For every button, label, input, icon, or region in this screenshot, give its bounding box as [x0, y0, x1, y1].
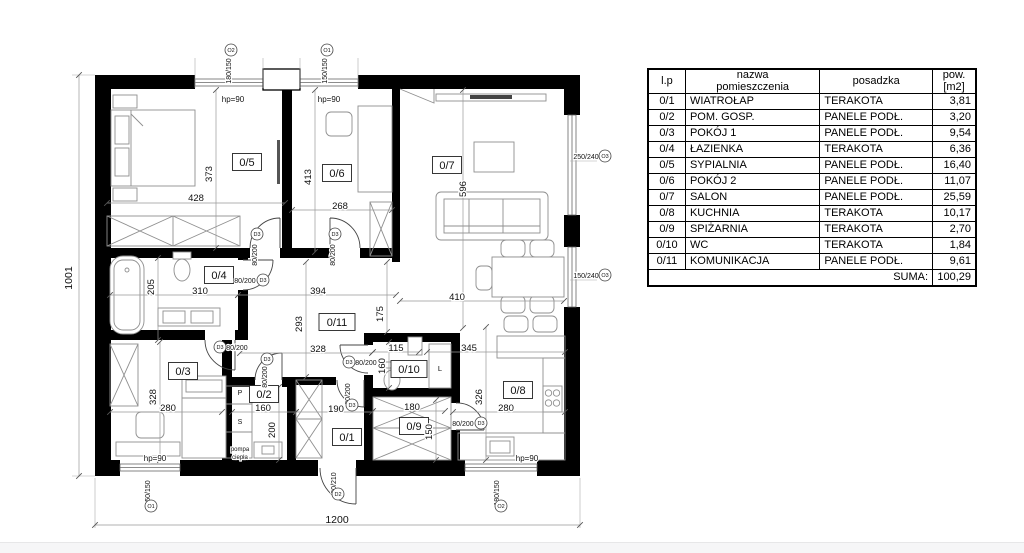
cell-lp: 0/2	[648, 110, 685, 126]
dimension-text: 310	[192, 286, 208, 297]
dimension-text: 293	[294, 316, 305, 332]
mark-label: O2	[497, 504, 504, 510]
annotation: hp=90	[318, 95, 341, 104]
table-row: 0/6POKÓJ 2PANELE PODŁ.11,07	[648, 174, 976, 190]
annotation: L	[438, 364, 442, 373]
chair	[530, 240, 554, 257]
cell-lp: 0/11	[648, 254, 685, 270]
nightstand	[113, 188, 137, 201]
chair	[530, 296, 554, 313]
suma-label: SUMA:	[648, 270, 933, 287]
dimension-text: 373	[204, 166, 215, 182]
cell-area: 9,61	[933, 254, 976, 270]
cell-area: 1,84	[933, 238, 976, 254]
cell-area: 11,07	[933, 174, 976, 190]
wardrobe	[107, 216, 240, 246]
dimension-text: 280	[160, 403, 176, 414]
cell-floor: PANELE PODŁ.	[820, 126, 933, 142]
dimension-text: 410	[449, 292, 465, 303]
floor-plan-page: 0/50/60/70/40/110/30/20/10/100/90/8 3734…	[0, 0, 1024, 553]
mark-label: D3	[263, 357, 270, 363]
cell-name: SALON	[685, 190, 819, 206]
opening-size: 80/200	[452, 421, 474, 428]
dimension-text: 180	[404, 402, 420, 413]
table-row: 0/8KUCHNIATERAKOTA10,17	[648, 206, 976, 222]
room-label: 0/3	[175, 366, 190, 378]
opening-size: 80/200	[262, 366, 269, 388]
room-label: 0/2	[256, 389, 271, 401]
tv	[470, 95, 512, 99]
dimension-text: 150	[424, 424, 435, 440]
kitchen-peninsula	[497, 336, 565, 358]
toilet	[173, 252, 191, 259]
chair	[476, 266, 492, 290]
header-lp: l.p	[648, 69, 685, 94]
dimension-text: 1200	[325, 514, 349, 526]
opening-size: 150/240	[573, 273, 598, 280]
dimension-text: 115	[388, 343, 403, 354]
cell-name: KOMUNIKACJA	[685, 254, 819, 270]
hob	[543, 386, 562, 412]
cell-floor: TERAKOTA	[820, 222, 933, 238]
opening-size: 80/200	[355, 360, 377, 367]
dimension-text: 160	[255, 403, 271, 414]
dimension-text: 328	[148, 389, 159, 405]
dimension-text: 190	[328, 404, 344, 415]
opening-size: 80/200	[252, 244, 259, 266]
cell-area: 2,70	[933, 222, 976, 238]
annotation: hp=90	[144, 454, 167, 463]
cell-floor: PANELE PODŁ.	[820, 190, 933, 206]
annotation: pompa	[231, 447, 250, 453]
dimension-text: 413	[303, 169, 314, 185]
cell-lp: 0/8	[648, 206, 685, 222]
opening-size: 180/150	[226, 58, 233, 83]
dimension-text: 1001	[63, 266, 75, 290]
table-row: 0/7SALONPANELE PODŁ.25,59	[648, 190, 976, 206]
dimension-text: 205	[146, 279, 157, 295]
dimension-text: 268	[332, 201, 348, 212]
cell-lp: 0/10	[648, 238, 685, 254]
table-row: 0/4ŁAZIENKATERAKOTA6,36	[648, 142, 976, 158]
cell-name: POM. GOSP.	[685, 110, 819, 126]
mark-label: D3	[348, 403, 355, 409]
cell-floor: TERAKOTA	[820, 94, 933, 110]
chimney	[263, 69, 300, 90]
dimension-text: 345	[461, 343, 477, 354]
opening-size: 80/200	[330, 244, 337, 266]
annotation: hp=90	[516, 454, 539, 463]
cell-floor: PANELE PODŁ.	[820, 158, 933, 174]
opening-size: 80/200	[226, 345, 248, 352]
nightstand	[113, 95, 137, 108]
table-suma-row: SUMA: 100,29	[648, 270, 976, 287]
mark-label: D3	[253, 232, 260, 238]
desk	[358, 106, 392, 192]
table-row: 0/9SPIŻARNIATERAKOTA2,70	[648, 222, 976, 238]
cell-area: 6,36	[933, 142, 976, 158]
washer	[254, 442, 282, 458]
cell-name: WIATROŁAP	[685, 94, 819, 110]
bar-stool	[504, 316, 528, 332]
mark-label: O3	[601, 154, 608, 160]
cell-name: SYPIALNIA	[685, 158, 819, 174]
room-label: 0/1	[339, 432, 354, 444]
mark-label: D3	[477, 421, 484, 427]
cell-area: 16,40	[933, 158, 976, 174]
cell-lp: 0/6	[648, 174, 685, 190]
table-row: 0/5SYPIALNIAPANELE PODŁ.16,40	[648, 158, 976, 174]
header-floor: posadzka	[820, 69, 933, 94]
room-label: 0/9	[406, 421, 421, 433]
cell-name: POKÓJ 1	[685, 126, 819, 142]
room-label: 0/7	[439, 160, 454, 172]
cell-floor: TERAKOTA	[820, 238, 933, 254]
cell-floor: PANELE PODŁ.	[820, 254, 933, 270]
cell-lp: 0/4	[648, 142, 685, 158]
cell-name: SPIŻARNIA	[685, 222, 819, 238]
mark-label: O1	[147, 504, 154, 510]
cell-floor: TERAKOTA	[820, 206, 933, 222]
mark-label: D3	[331, 232, 338, 238]
cell-name: WC	[685, 238, 819, 254]
cell-area: 10,17	[933, 206, 976, 222]
room-label: 0/5	[239, 157, 254, 169]
room-label: 0/8	[510, 385, 525, 397]
tv	[277, 140, 280, 184]
chair	[501, 296, 525, 313]
dimension-text: 280	[498, 403, 514, 414]
dimension-text: 428	[188, 193, 204, 204]
table-row: 0/10WCTERAKOTA1,84	[648, 238, 976, 254]
cell-lp: 0/1	[648, 94, 685, 110]
dimension-text: 200	[267, 422, 278, 438]
mark-label: O3	[601, 273, 608, 279]
header-area: pow. [m2]	[933, 69, 976, 94]
cell-lp: 0/3	[648, 126, 685, 142]
dimension-text: 175	[375, 306, 386, 322]
opening-size: 250/240	[573, 154, 598, 161]
room-label: 0/6	[329, 168, 344, 180]
table-row: 0/2POM. GOSP.PANELE PODŁ.3,20	[648, 110, 976, 126]
chair	[501, 240, 525, 257]
dimension-text: 394	[310, 286, 326, 297]
bar-stool	[533, 316, 557, 332]
table-row: 0/3POKÓJ 1PANELE PODŁ.9,54	[648, 126, 976, 142]
annotation: S	[238, 419, 243, 426]
mark-label: O1	[323, 48, 330, 54]
cell-lp: 0/9	[648, 222, 685, 238]
page-edge-strip	[0, 542, 1024, 553]
table-row: 0/1WIATROŁAPTERAKOTA3,81	[648, 94, 976, 110]
room-label: 0/11	[327, 317, 348, 329]
corner-shelf	[400, 89, 434, 103]
dining-table	[492, 257, 564, 297]
annotation: hp=90	[222, 95, 245, 104]
mark-label: D3	[345, 360, 352, 366]
cell-area: 3,81	[933, 94, 976, 110]
cell-name: ŁAZIENKA	[685, 142, 819, 158]
cell-floor: TERAKOTA	[820, 142, 933, 158]
table-header-row: l.p nazwa pomieszczenia posadzka pow. [m…	[648, 69, 976, 94]
mark-label: D2	[334, 492, 341, 498]
chair	[326, 112, 352, 136]
cell-area: 9,54	[933, 126, 976, 142]
opening-size: 80/200	[234, 278, 256, 285]
suma-value: 100,29	[933, 270, 976, 287]
mark-label: D3	[216, 345, 223, 351]
annotation: P	[238, 390, 243, 397]
dimension-text: 596	[458, 181, 469, 197]
coffee-table	[474, 142, 514, 172]
room-label: 0/10	[398, 364, 419, 376]
dimension-text: 160	[377, 358, 388, 374]
dimension-text: 328	[310, 344, 326, 355]
cell-area: 3,20	[933, 110, 976, 126]
cell-name: KUCHNIA	[685, 206, 819, 222]
cell-area: 25,59	[933, 190, 976, 206]
header-name: nazwa pomieszczenia	[685, 69, 819, 94]
cell-floor: PANELE PODŁ.	[820, 174, 933, 190]
opening-size: 150/150	[322, 58, 329, 83]
dimension-text: 326	[474, 389, 485, 405]
cell-name: POKÓJ 2	[685, 174, 819, 190]
cell-floor: PANELE PODŁ.	[820, 110, 933, 126]
cell-lp: 0/5	[648, 158, 685, 174]
table-row: 0/11KOMUNIKACJAPANELE PODŁ.9,61	[648, 254, 976, 270]
mark-label: D3	[259, 278, 266, 284]
room-label: 0/4	[211, 270, 226, 282]
cell-lp: 0/7	[648, 190, 685, 206]
room-schedule-table: l.p nazwa pomieszczenia posadzka pow. [m…	[647, 68, 977, 287]
mark-label: O2	[227, 48, 234, 54]
bed	[182, 376, 226, 458]
annotation: ciepła	[232, 455, 248, 461]
